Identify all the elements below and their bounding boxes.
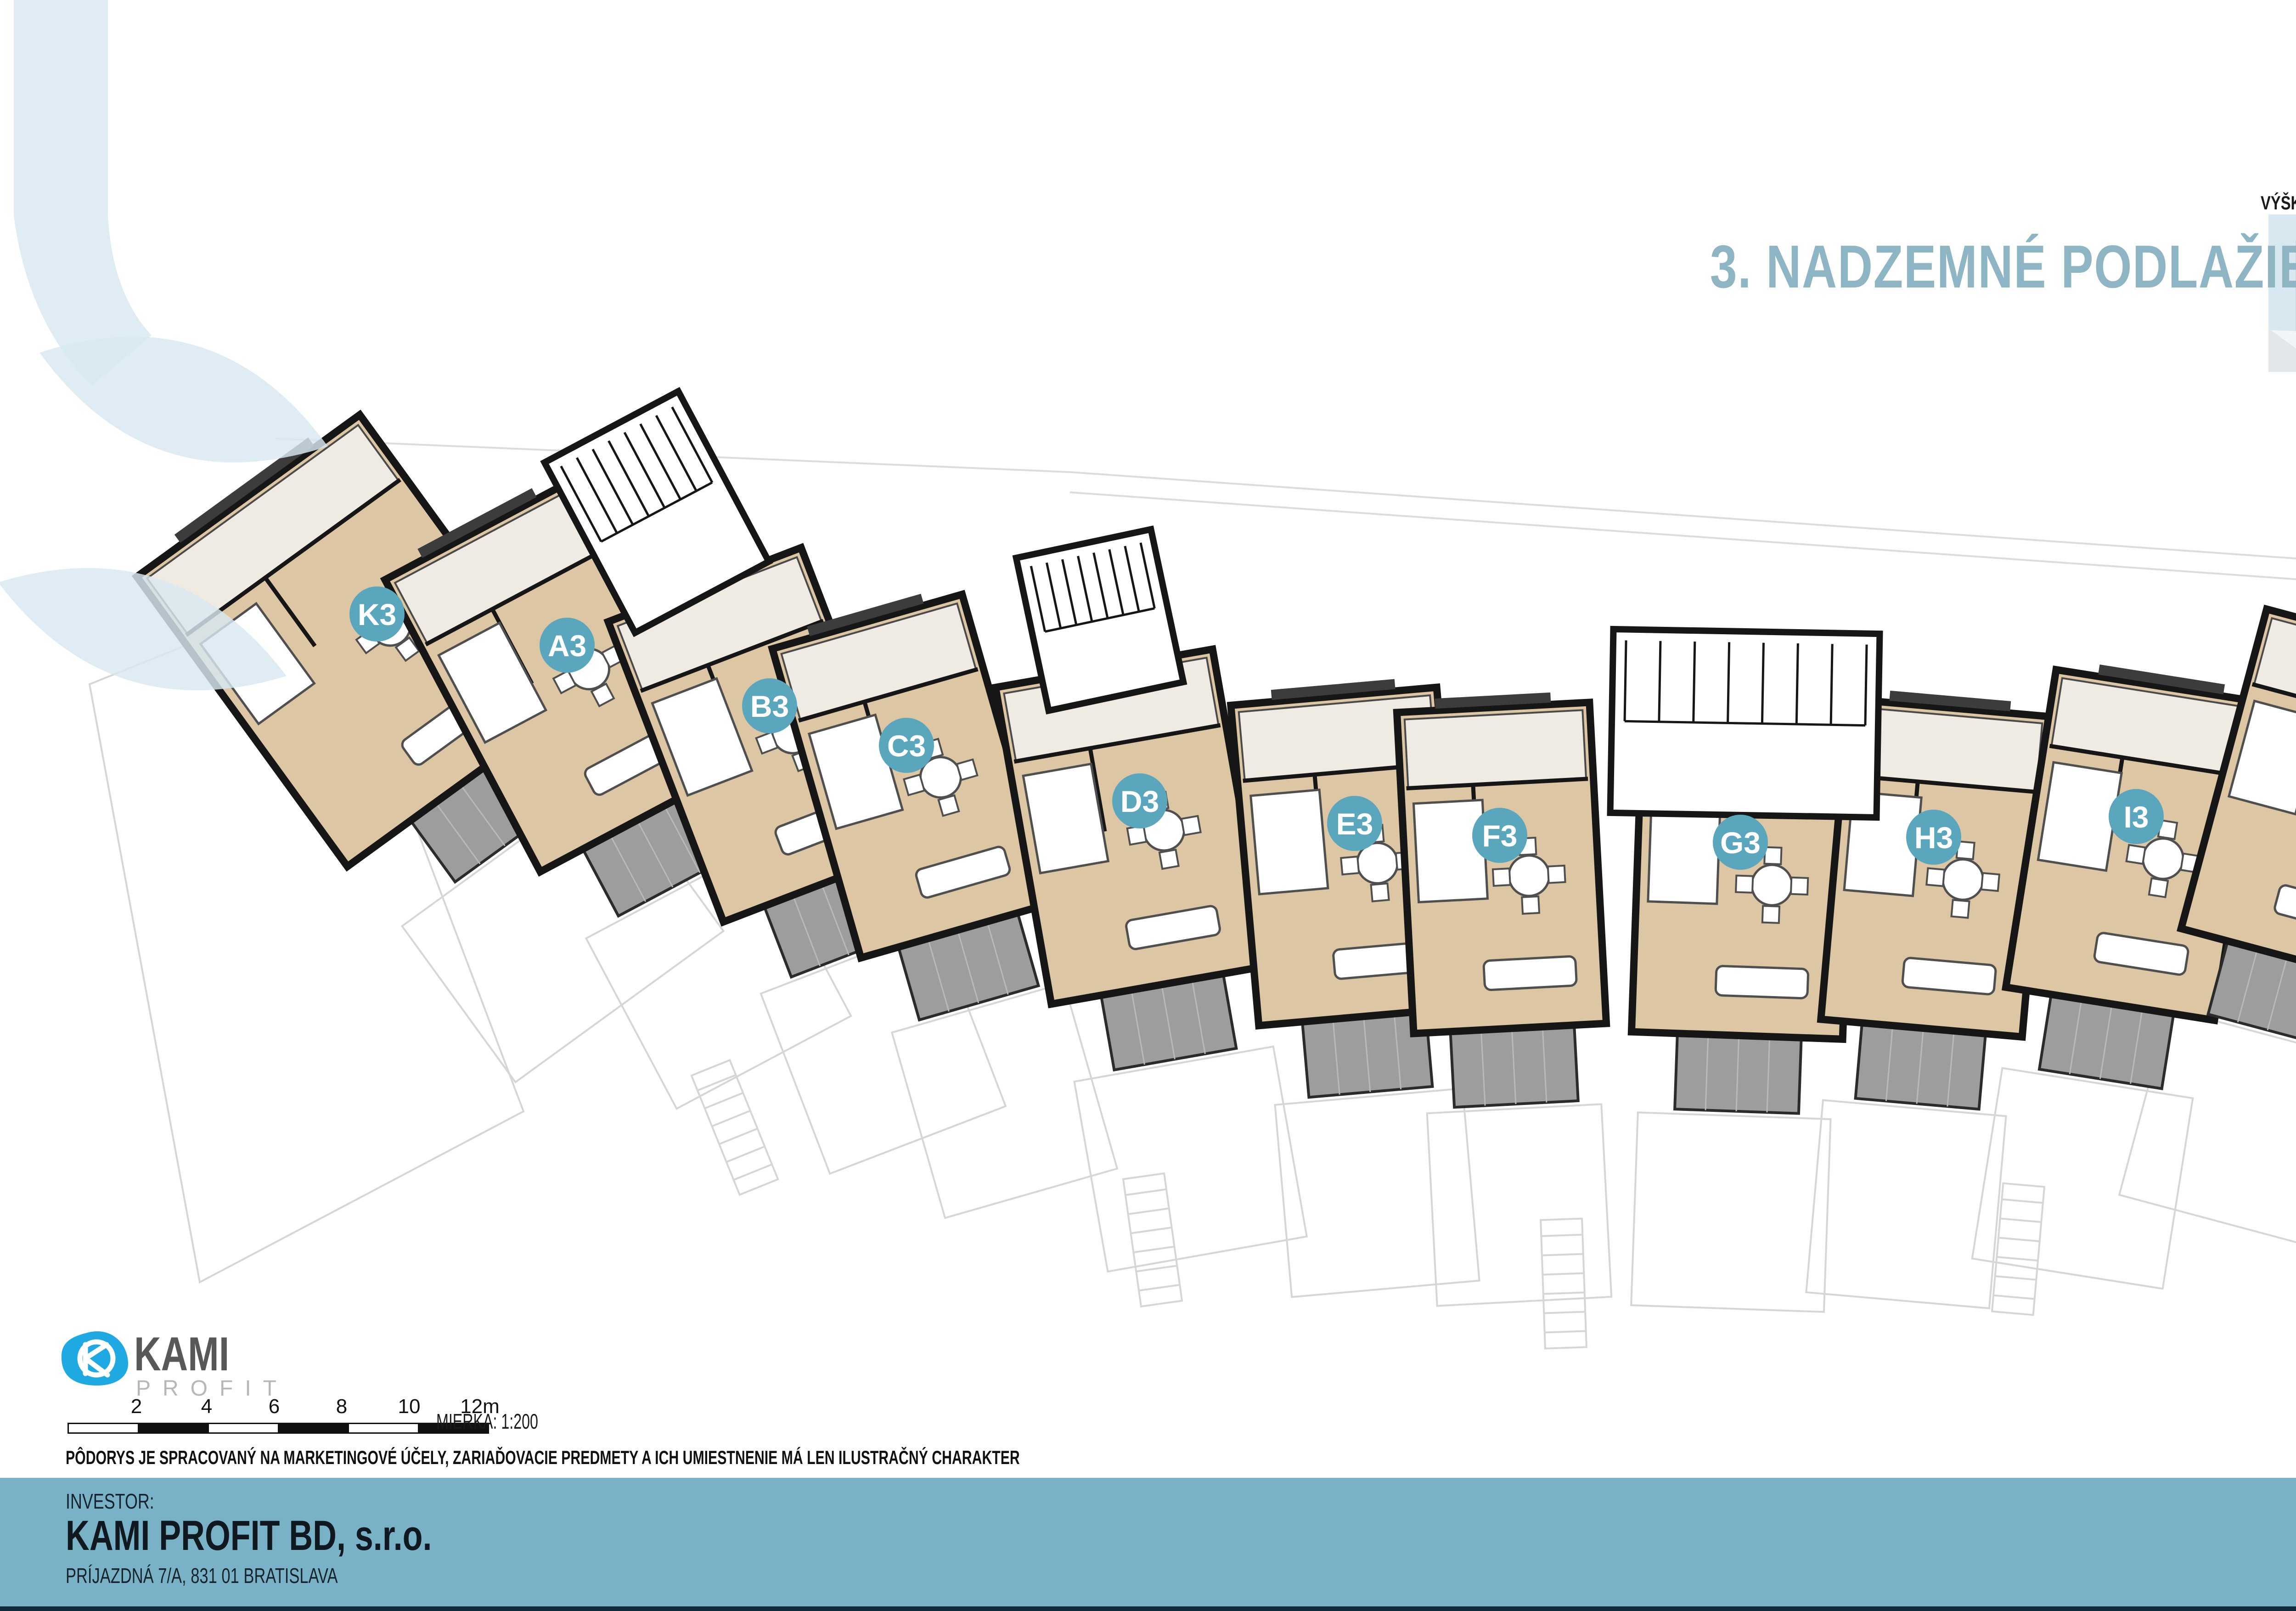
investor-label: INVESTOR: [66,1489,179,1514]
ghost-stair [1992,1183,2044,1315]
investor-address: PRÍJAZDNÁ 7/A, 831 01 BRATISLAVA [66,1563,428,1588]
scale-tick: 10 [398,1395,421,1418]
disclaimer-text: PÔDORYS JE SPRACOVANÝ NA MARKETINGOVÉ ÚČ… [66,1447,1391,1469]
page-title-text: 3. NADZEMNÉ PODLAŽIE [1710,232,2296,301]
sofa [1716,966,1808,998]
terrace-outline-I3 [1972,1068,2193,1289]
scale-segment [69,1424,138,1432]
unit-label-B3: B3 [742,678,797,733]
svg-text:D3: D3 [1120,784,1159,818]
stair-core-2 [1016,529,1183,711]
ghost-stair [1123,1173,1182,1307]
bed [1413,800,1487,902]
scale-label: MIERKA: 1:200 [436,1409,582,1434]
unit-label-D3: D3 [1112,773,1167,828]
unit-label-K3: K3 [349,586,405,642]
kami-company-name: KAMI [134,1327,256,1382]
terrace-outline-H3 [1806,1100,2006,1308]
unit-label-I3: I3 [2109,789,2164,844]
footer-band: INVESTOR: KAMI PROFIT BD, s.r.o. PRÍJAZD… [0,1478,2296,1606]
scale-bar [68,1423,489,1434]
elevation-position-label: VÝŠKOVÁ POZÍCIA 3NP [2261,192,2296,214]
unit-label-G3: G3 [1713,815,1768,870]
page-title: 3. NADZEMNÉ PODLAŽIE [1635,232,2227,301]
svg-text:A3: A3 [548,629,586,663]
site-line [1070,492,2296,595]
terrace-outline-G3 [1631,1112,1830,1312]
contact-email: predaj@kami-profit.sk [2268,1522,2296,1564]
footer-dark-strip [0,1606,2296,1611]
kami-profit-logo-icon [59,1331,130,1386]
ghost-stair [692,1060,778,1194]
svg-text:G3: G3 [1720,826,1761,860]
svg-text:E3: E3 [1336,807,1373,841]
bed [1648,803,1720,904]
unit-label-C3: C3 [879,718,934,773]
unit-label-F3: F3 [1472,808,1527,863]
bed [1251,790,1328,894]
stair-core-3 [1610,629,1880,817]
scale-segment [348,1424,418,1432]
ghost-stair [1541,1219,1587,1349]
unit-label-H3: H3 [1906,810,1961,865]
terrace-outline-D3 [1075,1047,1307,1272]
unit-label-E3: E3 [1327,796,1382,851]
bathroom [1405,710,1586,788]
scale-segment [208,1424,278,1432]
investor-name: KAMI PROFIT BD, s.r.o. [66,1512,535,1560]
terrace-outline-E3 [1275,1088,1480,1297]
sofa [1484,956,1577,990]
scale-segment [138,1424,208,1432]
site-line [1070,472,2296,575]
scale-tick: 6 [269,1395,280,1418]
table [1508,855,1550,897]
svg-text:C3: C3 [887,729,926,763]
svg-text:F3: F3 [1482,819,1517,853]
svg-text:H3: H3 [1914,821,1953,855]
scale-tick: 4 [201,1395,212,1418]
scale-tick: 2 [131,1395,142,1418]
svg-text:B3: B3 [750,689,789,723]
svg-text:I3: I3 [2123,800,2149,834]
svg-text:K3: K3 [358,597,396,631]
scale-tick: 8 [336,1395,347,1418]
unit-label-A3: A3 [540,618,595,673]
scale-segment [278,1424,348,1432]
table [1751,864,1793,906]
